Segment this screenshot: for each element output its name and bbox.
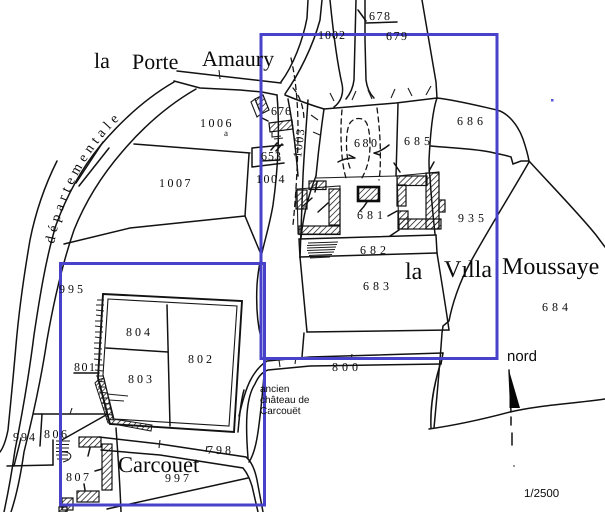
svg-text:1006: 1006 [200,116,234,130]
svg-text:682: 682 [360,243,390,257]
svg-text:a: a [224,128,228,138]
svg-text:686: 686 [457,114,487,128]
svg-text:nord: nord [507,348,537,365]
svg-text:804: 804 [126,325,153,339]
svg-text:1/2500: 1/2500 [524,488,559,500]
svg-text:1007: 1007 [159,176,193,190]
svg-text:801: 801 [74,360,97,374]
svg-text:679: 679 [386,29,409,43]
svg-text:807: 807 [66,470,92,484]
svg-text:château de: château de [260,395,310,406]
svg-text:Moussaye: Moussaye [502,254,599,280]
svg-text:Vılla: Vılla [444,257,492,283]
svg-text:680: 680 [354,136,380,150]
svg-text:798: 798 [207,443,234,457]
svg-text:995: 995 [59,282,86,296]
svg-text:800: 800 [332,360,362,374]
svg-text:la: la [405,259,423,285]
svg-text:994: 994 [13,430,37,444]
svg-text:Carcouet: Carcouet [118,452,200,477]
svg-text:676: 676 [271,104,292,118]
svg-text:la: la [94,48,110,73]
svg-text:653: 653 [261,149,282,163]
svg-text:1004: 1004 [256,172,286,186]
svg-text:Amaury: Amaury [202,46,274,71]
svg-text:935: 935 [458,211,488,225]
svg-text:683: 683 [363,279,393,293]
svg-text:678: 678 [369,9,392,23]
svg-text:Porte: Porte [132,49,178,74]
svg-text:806: 806 [44,427,70,441]
svg-text:685: 685 [404,134,434,148]
svg-text:1002: 1002 [318,28,346,42]
svg-text:803: 803 [128,372,155,386]
svg-text:684: 684 [542,300,572,314]
svg-text:681: 681 [357,208,387,222]
svg-text:Carcouët: Carcouët [260,406,301,417]
svg-text:ancien: ancien [260,384,289,395]
svg-text:802: 802 [188,352,215,366]
